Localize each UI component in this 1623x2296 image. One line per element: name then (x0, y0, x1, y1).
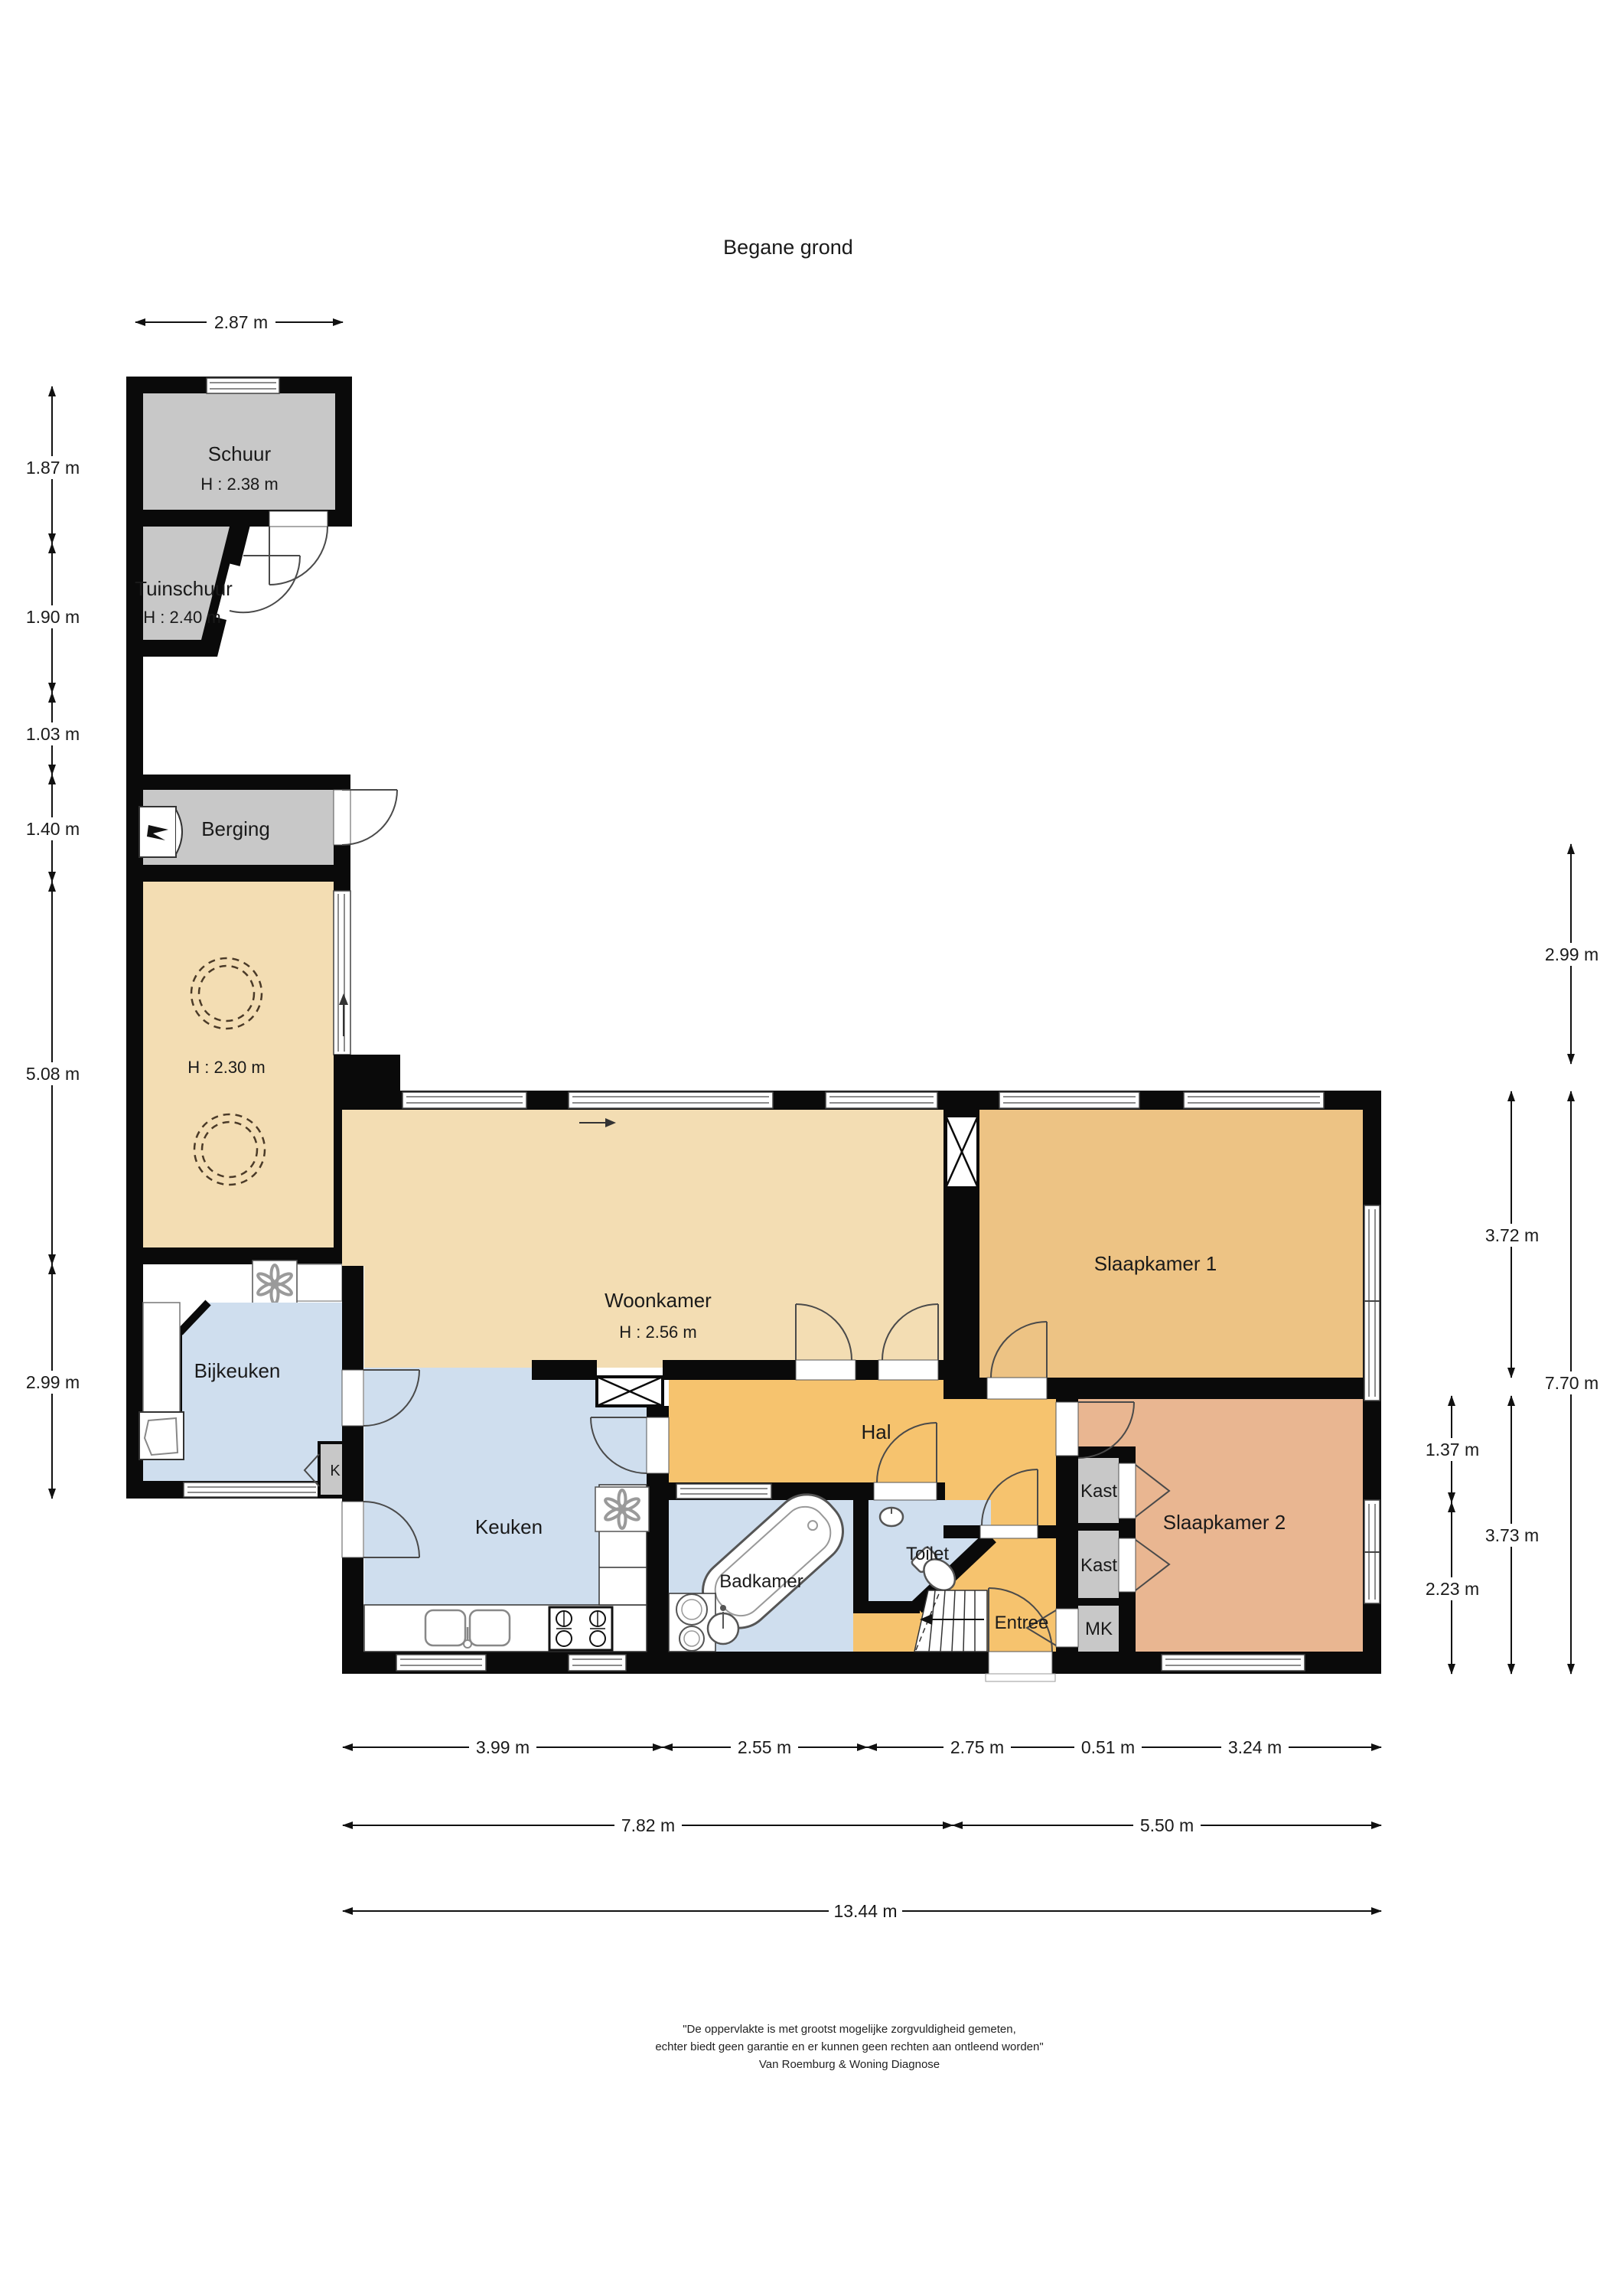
room-label-slaapkamer1: Slaapkamer 1 (1094, 1252, 1217, 1275)
window-icon (826, 1092, 937, 1108)
bijkeuken-sink-icon (139, 1412, 184, 1459)
footer-line-2: echter biedt geen garantie en er kunnen … (655, 2040, 1043, 2053)
dim-bottom1-5: 3.24 m (1228, 1737, 1282, 1757)
badkamer-toilet-wall (853, 1500, 869, 1613)
room-height-schuur: H : 2.38 m (200, 475, 278, 494)
bijkeuken-window-icon (184, 1482, 320, 1497)
dim-left-1: 1.87 m (26, 458, 80, 478)
room-label-tuinschuur: Tuinschuur (135, 577, 233, 600)
window-icon (1162, 1655, 1305, 1671)
window-icon (999, 1092, 1139, 1108)
kast-sep-wall2 (1078, 1598, 1119, 1606)
vent-unit-icon (253, 1261, 342, 1308)
kast-sep-wall1 (1078, 1523, 1119, 1531)
window-icon (1364, 1500, 1380, 1603)
toilet-sink-icon (880, 1508, 903, 1526)
boiler-icon (139, 807, 182, 857)
room-label-hal: Hal (861, 1420, 891, 1443)
dim-left-2: 1.90 m (26, 607, 80, 627)
dim-bottom2-2: 5.50 m (1140, 1815, 1194, 1835)
slaapkamer1-floor (979, 1110, 1363, 1378)
step-wall (334, 1055, 400, 1111)
footer-line-3: Van Roemburg & Woning Diagnose (759, 2058, 940, 2071)
dim-left-4: 1.40 m (26, 819, 80, 839)
dim-left-5: 5.08 m (26, 1064, 80, 1084)
shaft2-icon (946, 1116, 978, 1188)
footer-line-1: "De oppervlakte is met grootst mogelijke… (683, 2023, 1016, 2036)
room-label-keuken: Keuken (475, 1515, 543, 1538)
dim-right-4: 1.37 m (1426, 1440, 1479, 1459)
dim-left-6: 2.99 m (26, 1372, 80, 1392)
room-label-k: K (330, 1463, 341, 1479)
window-icon (1184, 1092, 1324, 1108)
page-title: Begane grond (723, 236, 853, 259)
dim-right-5: 3.73 m (1485, 1525, 1539, 1545)
dim-bottom1-1: 3.99 m (476, 1737, 530, 1757)
dim-right-6: 2.23 m (1426, 1579, 1479, 1599)
window-icon (402, 1092, 526, 1108)
dim-right-2: 3.72 m (1485, 1225, 1539, 1245)
window-icon (1364, 1205, 1380, 1401)
schuur-window-icon (207, 378, 279, 393)
room-label-woonkamer: Woonkamer (605, 1289, 712, 1312)
room-label-bijkeuken: Bijkeuken (194, 1359, 281, 1382)
dim-top: 2.87 m (214, 312, 268, 332)
floorplan-svg: Begane grond (0, 0, 1623, 2296)
berging-door-icon (334, 790, 397, 845)
kitchen-fan-icon (595, 1487, 649, 1531)
kast1-top-wall (1078, 1446, 1119, 1458)
room-label-slaapkamer2: Slaapkamer 2 (1163, 1511, 1286, 1534)
floorplan-page: Begane grond (0, 0, 1623, 2296)
room-label-badkamer: Badkamer (719, 1571, 803, 1592)
window-icon (396, 1655, 486, 1671)
room-label-kast1: Kast (1080, 1481, 1117, 1502)
dim-right-3: 7.70 m (1545, 1373, 1599, 1393)
room-label-kast2: Kast (1080, 1555, 1117, 1576)
room-label-berging: Berging (201, 817, 270, 840)
room-height-hobby: H : 2.30 m (187, 1058, 265, 1077)
west-wing (126, 377, 400, 1652)
room-height-tuinschuur: H : 2.40 m (143, 608, 220, 627)
schuur-door-icon (269, 511, 328, 585)
dim-bottom1-2: 2.55 m (738, 1737, 791, 1757)
window-icon (676, 1484, 771, 1499)
bijkeuken-counter (143, 1303, 180, 1412)
wing-east-wall (342, 1266, 363, 1652)
room-height-woonkamer: H : 2.56 m (619, 1322, 696, 1342)
dim-bottom1-3: 2.75 m (950, 1737, 1004, 1757)
woonkamer-south-wall-a (532, 1360, 597, 1380)
dim-bottom3-1: 13.44 m (833, 1901, 897, 1921)
dim-right-1: 2.99 m (1545, 944, 1599, 964)
dim-bottom1-4: 0.51 m (1081, 1737, 1135, 1757)
room-label-schuur: Schuur (208, 442, 272, 465)
room-label-toilet: Toilet (906, 1544, 949, 1564)
stove-icon (549, 1607, 612, 1650)
dim-left-3: 1.03 m (26, 724, 80, 744)
hobby-window-icon (334, 891, 350, 1055)
window-icon (569, 1655, 626, 1671)
shaft-icon (597, 1377, 663, 1406)
dim-bottom2-1: 7.82 m (621, 1815, 675, 1835)
footer: "De oppervlakte is met grootst mogelijke… (655, 2023, 1043, 2071)
room-label-mk: MK (1085, 1619, 1113, 1639)
window-icon (569, 1092, 773, 1108)
room-label-entree: Entree (995, 1613, 1049, 1633)
